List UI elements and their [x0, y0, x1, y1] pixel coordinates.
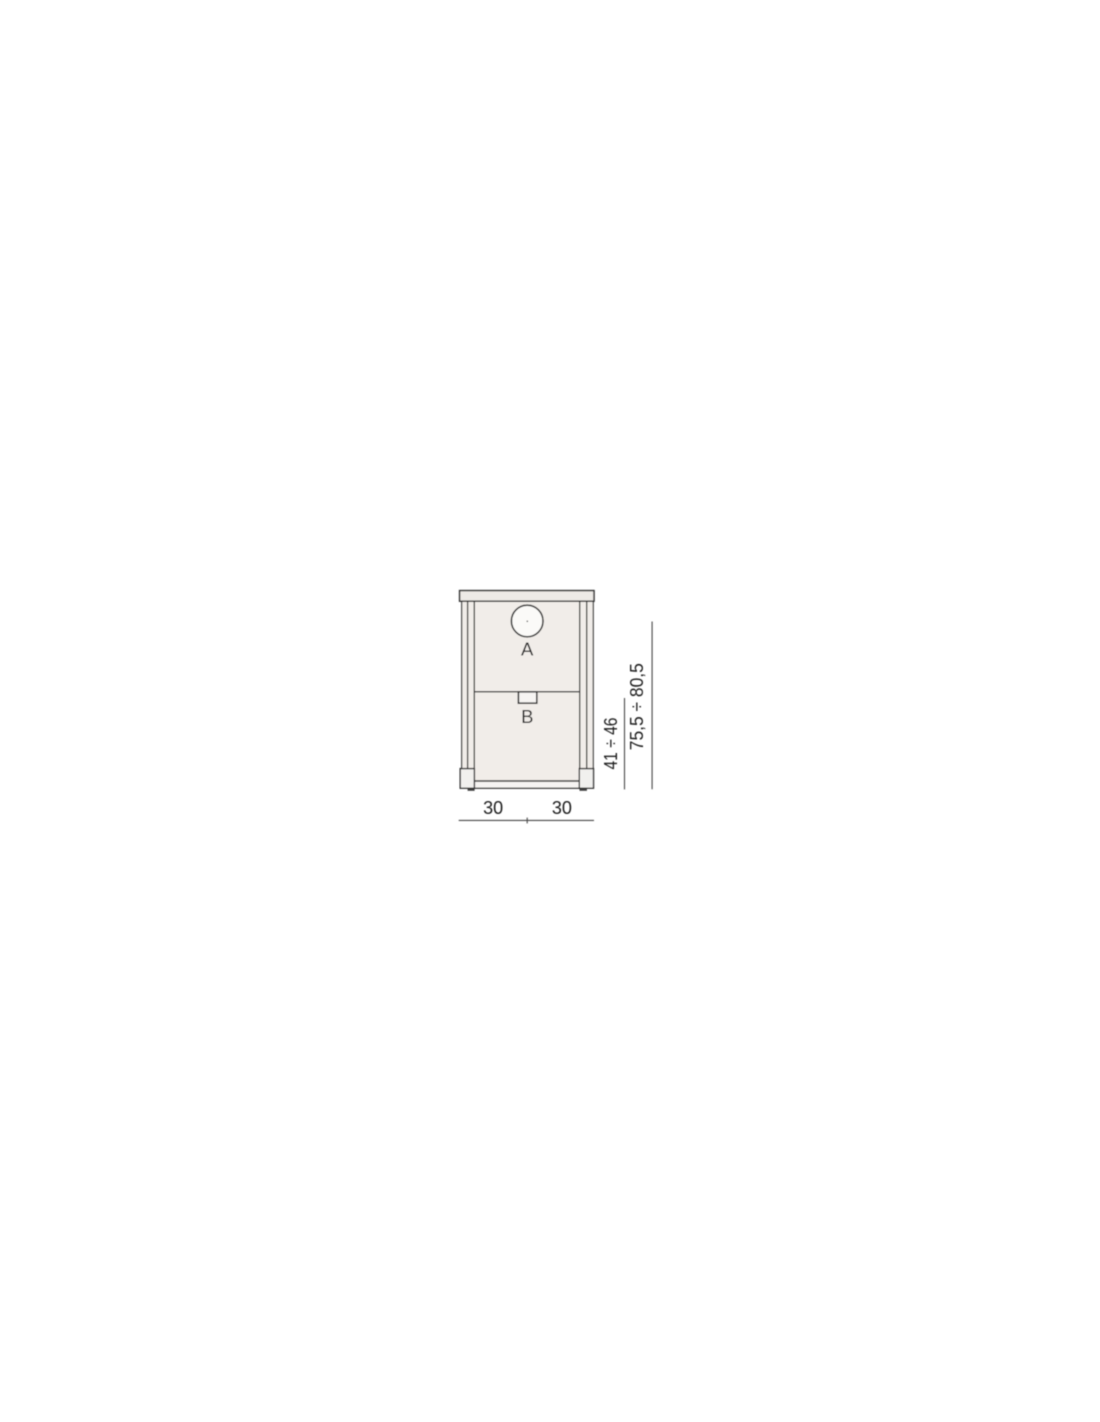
- svg-text:75,5 ÷ 80,5: 75,5 ÷ 80,5: [627, 663, 647, 750]
- svg-text:A: A: [521, 638, 534, 659]
- svg-text:30: 30: [552, 798, 572, 818]
- svg-text:B: B: [521, 706, 533, 727]
- svg-text:30: 30: [483, 798, 503, 818]
- svg-text:41 ÷ 46: 41 ÷ 46: [601, 718, 621, 770]
